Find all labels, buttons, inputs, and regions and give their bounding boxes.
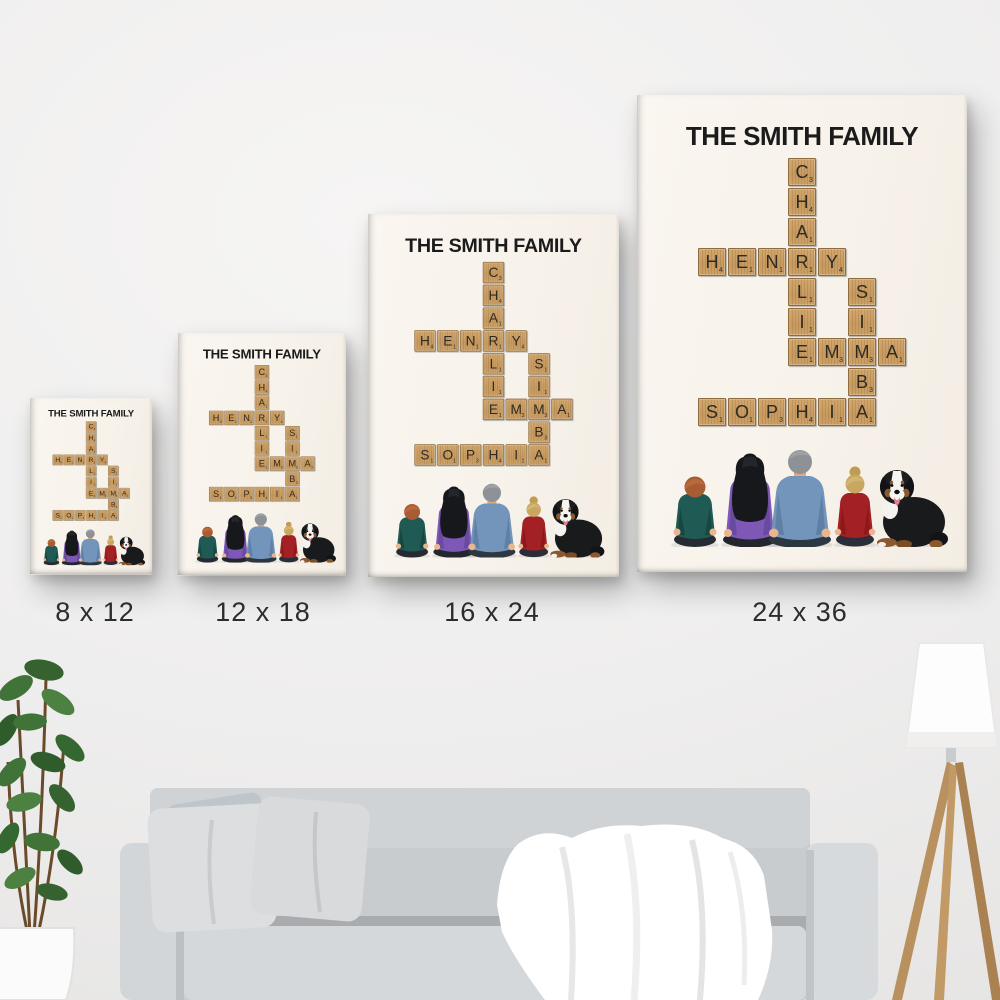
scrabble-tile-A: A1 bbox=[86, 444, 96, 454]
scrabble-tile-L: L1 bbox=[788, 278, 816, 306]
dog-figure bbox=[300, 524, 336, 563]
scrabble-tile-P: P3 bbox=[239, 487, 253, 501]
scrabble-tile-I: I1 bbox=[86, 477, 96, 487]
crossword-grid: C3H4A1H4E1N1R1Y4L1S1I1I1E1M3M3A1B3S1O1P3… bbox=[41, 421, 129, 520]
scrabble-tile-B: B3 bbox=[848, 368, 876, 396]
mom-figure bbox=[222, 515, 249, 562]
scrabble-tile-E: E1 bbox=[224, 411, 238, 425]
plant-leaves bbox=[0, 656, 89, 904]
scrabble-tile-M: M3 bbox=[285, 456, 299, 470]
scrabble-tile-A: A1 bbox=[285, 487, 299, 501]
scrabble-tile-R: R1 bbox=[788, 248, 816, 276]
scrabble-tile-O: O1 bbox=[437, 444, 458, 465]
scrabble-tile-H: H4 bbox=[255, 487, 269, 501]
dog-figure bbox=[877, 470, 948, 547]
scrabble-tile-A: A1 bbox=[878, 338, 906, 366]
scrabble-tile-H: H4 bbox=[255, 380, 269, 394]
scrabble-tile-A: A1 bbox=[788, 218, 816, 246]
scrabble-tile-M: M3 bbox=[818, 338, 846, 366]
poster-title: THE SMITH FAMILY bbox=[368, 234, 619, 258]
poster-title: THE SMITH FAMILY bbox=[637, 121, 967, 152]
scrabble-tile-E: E1 bbox=[483, 399, 504, 420]
poster-16x24: THE SMITH FAMILY C3H4A1H4E1N1R1Y4L1S1I1I… bbox=[368, 214, 619, 577]
scrabble-tile-E: E1 bbox=[255, 456, 269, 470]
scrabble-tile-B: B3 bbox=[108, 499, 118, 509]
mom-figure bbox=[62, 531, 82, 566]
dad-figure bbox=[769, 450, 831, 547]
mom-figure bbox=[433, 486, 474, 557]
scrabble-tile-A: A1 bbox=[255, 395, 269, 409]
scrabble-tile-H: H4 bbox=[209, 411, 223, 425]
size-label-12x18: 12 x 18 bbox=[215, 597, 311, 628]
dad-figure bbox=[79, 529, 102, 565]
lamp-leg bbox=[955, 762, 1000, 1000]
scrabble-tile-L: L1 bbox=[483, 353, 504, 374]
scrabble-tile-H: H4 bbox=[414, 330, 435, 351]
scrabble-tile-A: A1 bbox=[528, 444, 549, 465]
scrabble-tile-I: I1 bbox=[848, 308, 876, 336]
scrabble-tile-O: O1 bbox=[224, 487, 238, 501]
scrabble-tile-I: I1 bbox=[528, 376, 549, 397]
family-illustration bbox=[652, 447, 952, 547]
scrabble-tile-Y: Y4 bbox=[97, 455, 107, 465]
size-label-24x36: 24 x 36 bbox=[752, 597, 848, 628]
scrabble-tile-H: H4 bbox=[53, 455, 63, 465]
floor-lamp bbox=[892, 643, 1000, 1000]
pillow-right bbox=[249, 795, 371, 922]
scrabble-tile-S: S1 bbox=[53, 510, 63, 520]
throw-blanket bbox=[497, 825, 772, 1000]
canvas-print-16x24: THE SMITH FAMILY C3H4A1H4E1N1R1Y4L1S1I1I… bbox=[368, 214, 619, 577]
family-illustration bbox=[186, 512, 338, 563]
girl-figure bbox=[103, 535, 118, 565]
scrabble-tile-S: S1 bbox=[108, 466, 118, 476]
scrabble-tile-H: H4 bbox=[788, 188, 816, 216]
scrabble-tile-M: M3 bbox=[270, 456, 284, 470]
scrabble-tile-H: H4 bbox=[698, 248, 726, 276]
plant-pot bbox=[0, 928, 74, 1000]
scrabble-tile-B: B3 bbox=[528, 421, 549, 442]
scrabble-tile-N: N1 bbox=[758, 248, 786, 276]
scrabble-tile-I: I1 bbox=[255, 441, 269, 455]
scrabble-tile-E: E1 bbox=[64, 455, 74, 465]
dad-figure bbox=[245, 513, 276, 562]
crossword-grid: C3H4A1H4E1N1R1Y4L1S1I1I1E1M3M3A1B3S1O1P3… bbox=[392, 262, 573, 466]
canvas-print-8x12: THE SMITH FAMILY C3H4A1H4E1N1R1Y4L1S1I1I… bbox=[30, 398, 152, 574]
boy-figure bbox=[674, 477, 717, 548]
scrabble-tile-O: O1 bbox=[728, 398, 756, 426]
girl-figure bbox=[518, 496, 549, 557]
scrabble-tile-I: I1 bbox=[108, 477, 118, 487]
canvas-print-24x36: THE SMITH FAMILY C3H4A1H4E1N1R1Y4L1S1I1I… bbox=[637, 95, 967, 572]
scrabble-tile-N: N1 bbox=[239, 411, 253, 425]
poster-24x36: THE SMITH FAMILY C3H4A1H4E1N1R1Y4L1S1I1I… bbox=[637, 95, 967, 572]
scrabble-tile-M: M3 bbox=[506, 399, 527, 420]
scrabble-tile-R: R1 bbox=[255, 411, 269, 425]
size-label-8x12: 8 x 12 bbox=[55, 597, 135, 628]
scrabble-tile-I: I1 bbox=[818, 398, 846, 426]
scrabble-tile-L: L1 bbox=[86, 466, 96, 476]
poster-title: THE SMITH FAMILY bbox=[30, 408, 152, 419]
product-mockup-scene: THE SMITH FAMILY C3H4A1H4E1N1R1Y4L1S1I1I… bbox=[0, 0, 1000, 1000]
scrabble-tile-I: I1 bbox=[506, 444, 527, 465]
scrabble-tile-Y: Y4 bbox=[818, 248, 846, 276]
scrabble-tile-N: N1 bbox=[75, 455, 85, 465]
scrabble-tile-Y: Y4 bbox=[270, 411, 284, 425]
scrabble-tile-A: A1 bbox=[551, 399, 572, 420]
dog-figure bbox=[119, 537, 145, 565]
scrabble-tile-R: R1 bbox=[86, 455, 96, 465]
scrabble-tile-I: I1 bbox=[270, 487, 284, 501]
sofa-right-arm-edge bbox=[806, 850, 814, 1000]
crossword-grid: C3H4A1H4E1N1R1Y4L1S1I1I1E1M3M3A1B3S1O1P3… bbox=[668, 158, 906, 426]
scrabble-tile-Y: Y4 bbox=[506, 330, 527, 351]
scrabble-tile-C: C3 bbox=[788, 158, 816, 186]
scrabble-tile-R: R1 bbox=[483, 330, 504, 351]
dad-figure bbox=[468, 484, 515, 558]
girl-figure bbox=[278, 522, 299, 563]
lamp-shade-shading bbox=[906, 732, 997, 747]
scrabble-tile-P: P3 bbox=[75, 510, 85, 520]
scrabble-tile-H: H4 bbox=[86, 510, 96, 520]
dog-figure bbox=[550, 499, 604, 558]
scrabble-tile-S: S1 bbox=[285, 426, 299, 440]
scrabble-tile-A: A1 bbox=[300, 456, 314, 470]
scrabble-tile-N: N1 bbox=[460, 330, 481, 351]
scrabble-tile-S: S1 bbox=[528, 353, 549, 374]
sofa bbox=[120, 788, 878, 1000]
family-illustration bbox=[379, 482, 607, 558]
scrabble-tile-H: H4 bbox=[86, 432, 96, 442]
scrabble-tile-S: S1 bbox=[698, 398, 726, 426]
potted-plant bbox=[0, 656, 89, 1000]
scrabble-tile-A: A1 bbox=[848, 398, 876, 426]
scrabble-tile-H: H4 bbox=[483, 444, 504, 465]
scrabble-tile-M: M3 bbox=[97, 488, 107, 498]
scrabble-tile-E: E1 bbox=[788, 338, 816, 366]
boy-figure bbox=[44, 539, 60, 565]
girl-figure bbox=[835, 467, 875, 547]
sofa-right-arm bbox=[806, 843, 878, 1000]
scrabble-tile-A: A1 bbox=[119, 488, 129, 498]
scrabble-tile-E: E1 bbox=[86, 488, 96, 498]
scrabble-tile-C: C3 bbox=[255, 365, 269, 379]
scrabble-tile-I: I1 bbox=[483, 376, 504, 397]
scrabble-tile-L: L1 bbox=[255, 426, 269, 440]
scrabble-tile-E: E1 bbox=[728, 248, 756, 276]
scrabble-tile-A: A1 bbox=[108, 510, 118, 520]
scrabble-tile-B: B3 bbox=[285, 472, 299, 486]
scrabble-tile-H: H4 bbox=[788, 398, 816, 426]
scrabble-tile-S: S1 bbox=[414, 444, 435, 465]
mom-figure bbox=[723, 454, 777, 548]
canvas-print-12x18: THE SMITH FAMILY C3H4A1H4E1N1R1Y4L1S1I1I… bbox=[178, 333, 346, 575]
scrabble-tile-M: M3 bbox=[848, 338, 876, 366]
crossword-grid: C3H4A1H4E1N1R1Y4L1S1I1I1E1M3M3A1B3S1O1P3… bbox=[194, 365, 315, 501]
boy-figure bbox=[396, 504, 429, 558]
size-label-16x24: 16 x 24 bbox=[444, 597, 540, 628]
scrabble-tile-A: A1 bbox=[483, 307, 504, 328]
scrabble-tile-O: O1 bbox=[64, 510, 74, 520]
scrabble-tile-S: S1 bbox=[848, 278, 876, 306]
scrabble-tile-C: C3 bbox=[86, 421, 96, 431]
scrabble-tile-P: P3 bbox=[460, 444, 481, 465]
scrabble-tile-E: E1 bbox=[437, 330, 458, 351]
scrabble-tile-C: C3 bbox=[483, 262, 504, 283]
boy-figure bbox=[197, 527, 219, 563]
scrabble-tile-I: I1 bbox=[285, 441, 299, 455]
scrabble-tile-M: M3 bbox=[108, 488, 118, 498]
scrabble-tile-I: I1 bbox=[788, 308, 816, 336]
scrabble-tile-P: P3 bbox=[758, 398, 786, 426]
scrabble-tile-H: H4 bbox=[483, 285, 504, 306]
scrabble-tile-I: I1 bbox=[97, 510, 107, 520]
poster-title: THE SMITH FAMILY bbox=[178, 346, 346, 362]
scrabble-tile-M: M3 bbox=[528, 399, 549, 420]
scrabble-tile-S: S1 bbox=[209, 487, 223, 501]
lamp-shade bbox=[906, 643, 997, 747]
poster-12x18: THE SMITH FAMILY C3H4A1H4E1N1R1Y4L1S1I1I… bbox=[178, 333, 346, 575]
family-illustration bbox=[36, 528, 147, 565]
poster-8x12: THE SMITH FAMILY C3H4A1H4E1N1R1Y4L1S1I1I… bbox=[30, 398, 152, 574]
